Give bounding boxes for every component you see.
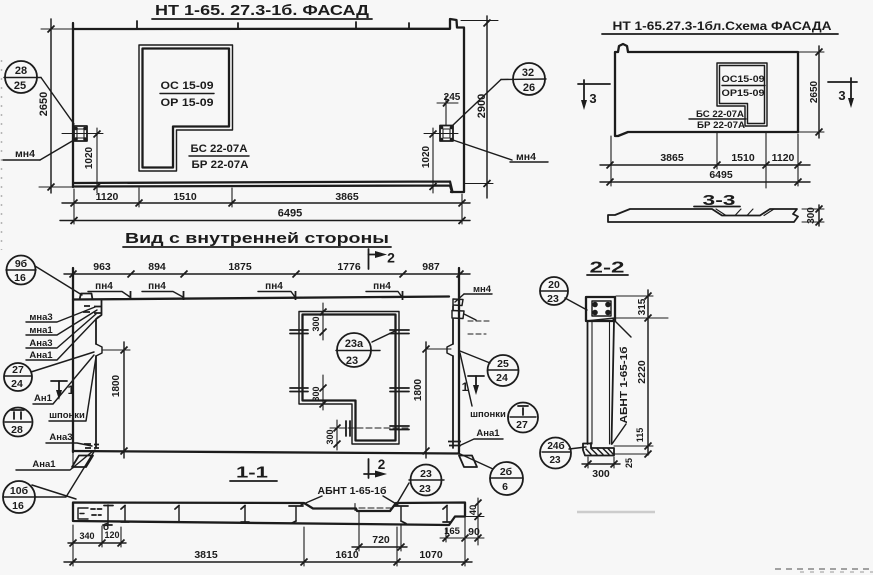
svg-text:27: 27 xyxy=(12,364,24,376)
svg-text:300: 300 xyxy=(325,429,335,444)
svg-text:Ана1: Ана1 xyxy=(476,428,500,439)
svg-text:23: 23 xyxy=(547,293,559,305)
svg-text:24: 24 xyxy=(11,378,23,390)
svg-text:24: 24 xyxy=(496,372,508,384)
svg-text:1776: 1776 xyxy=(337,261,361,273)
svg-text:25: 25 xyxy=(14,80,26,92)
svg-text:23а: 23а xyxy=(345,338,364,350)
svg-text:пн4: пн4 xyxy=(373,281,391,292)
svg-text:300: 300 xyxy=(592,468,610,480)
svg-text:3: 3 xyxy=(589,91,596,106)
svg-text:БС 22-07А: БС 22-07А xyxy=(191,143,248,155)
svg-text:40: 40 xyxy=(468,505,479,516)
svg-text:23: 23 xyxy=(346,355,358,367)
svg-text:3865: 3865 xyxy=(660,152,684,164)
svg-text:АБНТ 1-65-1б: АБНТ 1-65-1б xyxy=(618,346,630,424)
svg-text:2650: 2650 xyxy=(38,92,50,116)
svg-text:25: 25 xyxy=(624,458,634,468)
svg-text:28: 28 xyxy=(15,65,27,77)
svg-text:шпонки: шпонки xyxy=(49,410,85,421)
svg-text:1800: 1800 xyxy=(413,378,424,401)
svg-text:25: 25 xyxy=(497,358,509,370)
svg-text:23: 23 xyxy=(549,455,561,466)
svg-text:НТ 1-65.27.3-1бл.Схема ФАСАДА: НТ 1-65.27.3-1бл.Схема ФАСАДА xyxy=(613,21,832,33)
svg-text:1610: 1610 xyxy=(335,549,359,561)
svg-text:БР 22-07А: БР 22-07А xyxy=(697,120,745,131)
svg-text:1070: 1070 xyxy=(419,549,443,561)
svg-text:6: 6 xyxy=(502,481,508,493)
svg-text:6495: 6495 xyxy=(709,169,733,181)
svg-text:1020: 1020 xyxy=(421,145,432,168)
svg-text:2б: 2б xyxy=(500,466,513,478)
svg-text:9б: 9б xyxy=(15,258,28,270)
svg-text:120: 120 xyxy=(104,530,119,540)
svg-text:Ан1: Ан1 xyxy=(34,393,53,404)
svg-text:3865: 3865 xyxy=(335,191,359,203)
svg-text:2220: 2220 xyxy=(636,360,648,384)
svg-text:6495: 6495 xyxy=(278,208,302,220)
svg-text:165: 165 xyxy=(444,526,461,537)
svg-text:2650: 2650 xyxy=(809,80,820,103)
svg-text:300: 300 xyxy=(311,316,321,331)
svg-text:шпонки: шпонки xyxy=(470,409,506,420)
svg-text:300: 300 xyxy=(311,386,321,401)
svg-text:1: 1 xyxy=(68,383,75,397)
svg-text:10б: 10б xyxy=(10,485,29,497)
svg-text:24б: 24б xyxy=(547,440,564,452)
svg-text:пн4: пн4 xyxy=(95,281,113,292)
svg-text:340: 340 xyxy=(79,531,94,541)
svg-text:1875: 1875 xyxy=(228,261,252,273)
svg-text:ОС 15-09: ОС 15-09 xyxy=(161,80,214,92)
svg-text:пн4: пн4 xyxy=(265,281,283,292)
svg-text:1020: 1020 xyxy=(84,146,95,169)
svg-text:16: 16 xyxy=(14,272,26,284)
svg-text:1510: 1510 xyxy=(731,152,755,164)
svg-text:ОР 15-09: ОР 15-09 xyxy=(161,97,214,109)
svg-text:963: 963 xyxy=(93,261,111,273)
svg-text:1120: 1120 xyxy=(772,152,795,164)
svg-text:720: 720 xyxy=(372,534,390,546)
svg-text:1800: 1800 xyxy=(111,374,122,397)
svg-text:26: 26 xyxy=(523,82,535,94)
svg-text:Ана1: Ана1 xyxy=(32,459,56,470)
svg-text:ОС15-09: ОС15-09 xyxy=(722,74,765,85)
svg-text:23: 23 xyxy=(420,468,432,480)
svg-text:1-1: 1-1 xyxy=(236,465,269,482)
svg-text:БР 22-07А: БР 22-07А xyxy=(192,159,249,171)
svg-text:20: 20 xyxy=(548,279,560,291)
svg-text:ОР15-09: ОР15-09 xyxy=(722,88,765,99)
svg-text:2: 2 xyxy=(387,250,395,266)
svg-text:27: 27 xyxy=(516,419,528,431)
svg-text:245: 245 xyxy=(444,92,461,103)
svg-text:3815: 3815 xyxy=(194,549,218,561)
svg-text:300: 300 xyxy=(806,207,817,224)
svg-text:НТ 1-65. 27.3-1б. ФАСАД: НТ 1-65. 27.3-1б. ФАСАД xyxy=(155,2,369,19)
svg-text:1510: 1510 xyxy=(173,191,197,203)
svg-text:АБНТ 1-65-1б: АБНТ 1-65-1б xyxy=(318,485,387,497)
svg-text:987: 987 xyxy=(422,261,440,273)
svg-text:мн4: мн4 xyxy=(516,151,536,163)
svg-text:2-2: 2-2 xyxy=(590,260,625,277)
svg-text:3: 3 xyxy=(838,88,845,103)
svg-text:16: 16 xyxy=(12,500,24,512)
svg-text:23: 23 xyxy=(419,483,431,495)
svg-text:пн4: пн4 xyxy=(148,281,166,292)
svg-text:1120: 1120 xyxy=(96,191,119,203)
svg-text:2: 2 xyxy=(378,457,386,472)
svg-text:2900: 2900 xyxy=(476,94,488,118)
svg-text:894: 894 xyxy=(148,261,166,273)
svg-text:315: 315 xyxy=(637,298,648,315)
svg-text:32: 32 xyxy=(522,67,534,79)
svg-text:115: 115 xyxy=(635,428,645,443)
svg-text:мн4: мн4 xyxy=(15,148,35,160)
svg-text:90: 90 xyxy=(468,526,480,538)
svg-text:Вид с внутренней стороны: Вид с внутренней стороны xyxy=(125,231,389,247)
svg-text:Ана3: Ана3 xyxy=(49,432,72,443)
svg-text:28: 28 xyxy=(11,424,23,436)
